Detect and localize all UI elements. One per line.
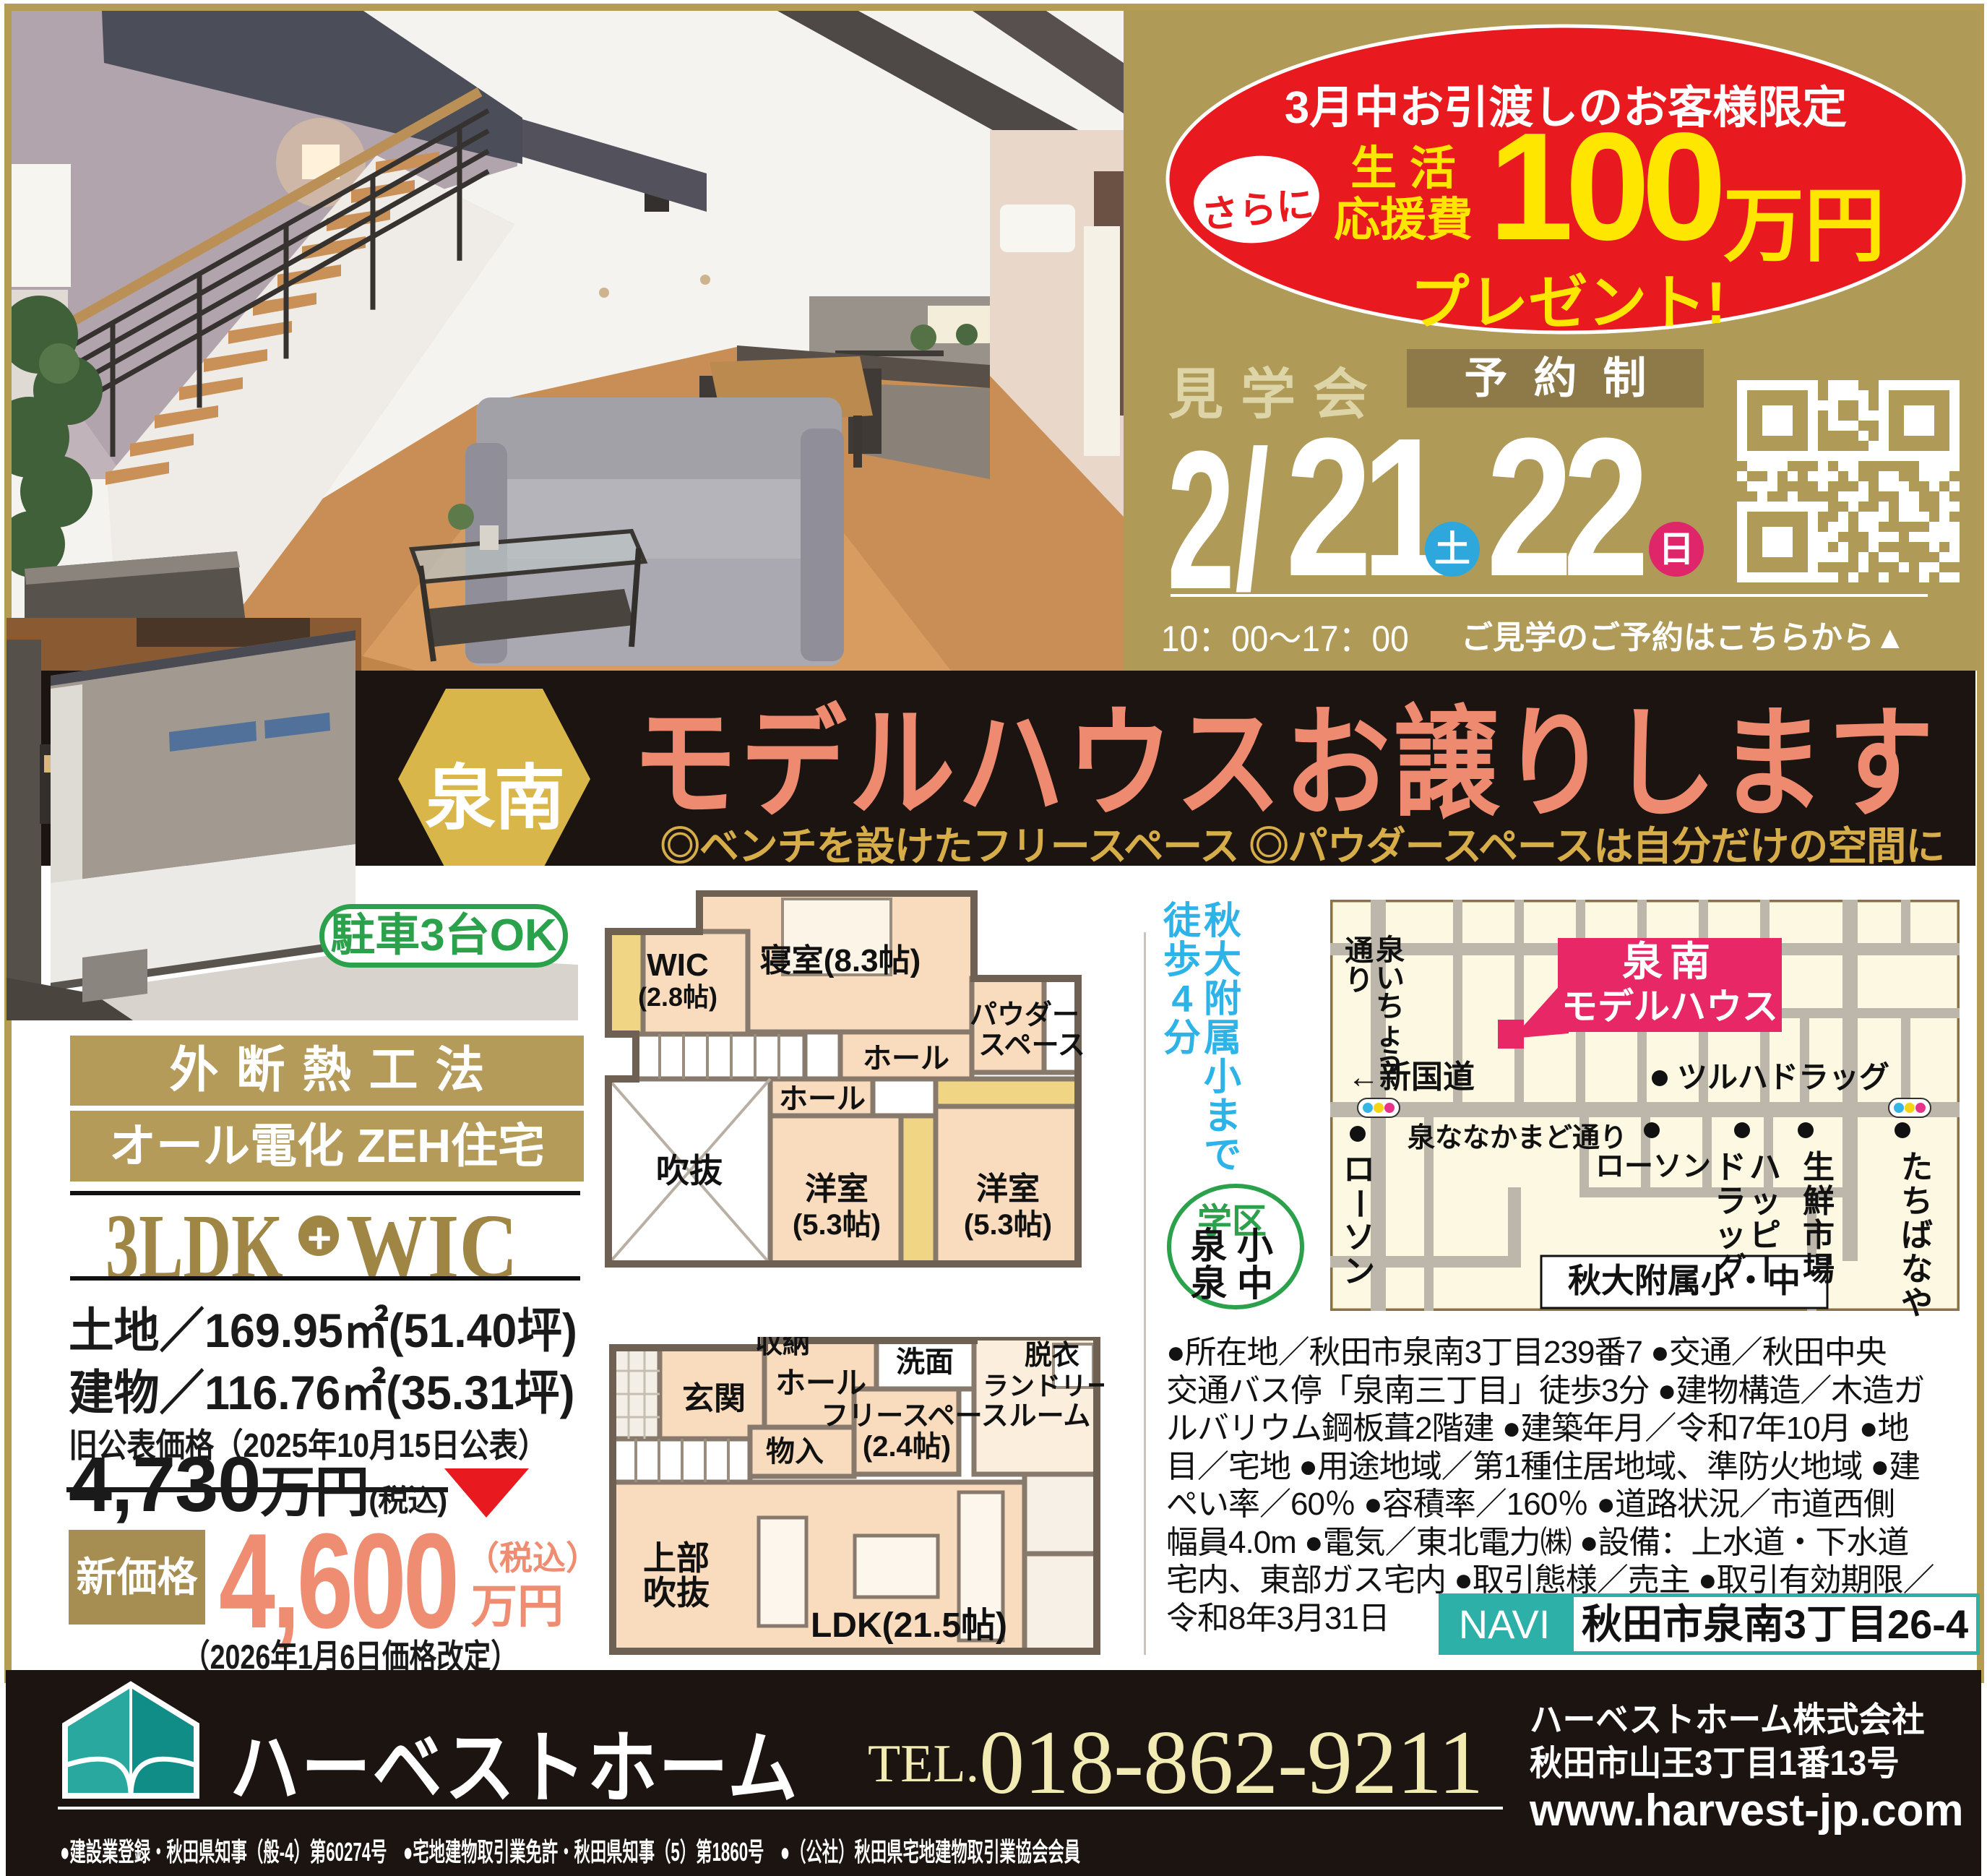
svg-text:ルーム: ルーム bbox=[1009, 1401, 1091, 1432]
svg-text:ランドリー: ランドリー bbox=[983, 1371, 1104, 1400]
svg-text:洋室: 洋室 bbox=[976, 1171, 1040, 1207]
svg-text:ローソン: ローソン bbox=[1595, 1150, 1711, 1182]
svg-text:洋室: 洋室 bbox=[805, 1171, 868, 1207]
svg-text:収納: 収納 bbox=[755, 1337, 810, 1359]
svg-text:吹抜: 吹抜 bbox=[656, 1152, 723, 1189]
svg-text:スペース: スペース bbox=[978, 1030, 1085, 1061]
svg-text:ホール: ホール bbox=[775, 1366, 866, 1400]
svg-text:玄関: 玄関 bbox=[682, 1381, 746, 1416]
svg-text:ツルハドラッグ: ツルハドラッグ bbox=[1677, 1060, 1889, 1094]
svg-text:パウダー: パウダー bbox=[970, 1000, 1079, 1030]
svg-text:上部: 上部 bbox=[643, 1539, 710, 1577]
svg-text:洗面: 洗面 bbox=[896, 1346, 954, 1378]
svg-text:(2.8帖): (2.8帖) bbox=[638, 982, 717, 1012]
svg-text:寝室(8.3帖): 寝室(8.3帖) bbox=[760, 942, 921, 978]
svg-text:モデルハウス: モデルハウス bbox=[1561, 986, 1778, 1027]
svg-text:(5.3帖): (5.3帖) bbox=[793, 1209, 881, 1241]
svg-text:フリースペース: フリースペース bbox=[821, 1401, 1009, 1432]
svg-text:泉ななかまど通り: 泉ななかまど通り bbox=[1408, 1123, 1627, 1153]
svg-text:WIC: WIC bbox=[647, 947, 709, 983]
svg-text:(5.3帖): (5.3帖) bbox=[964, 1209, 1052, 1241]
svg-text:(2.4帖): (2.4帖) bbox=[863, 1431, 951, 1463]
svg-text:物入: 物入 bbox=[766, 1436, 824, 1468]
svg-text:ホール: ホール bbox=[863, 1043, 949, 1075]
svg-text:LDK(21.5帖): LDK(21.5帖) bbox=[811, 1606, 1007, 1645]
svg-text:脱衣: 脱衣 bbox=[1025, 1341, 1079, 1371]
svg-text:吹抜: 吹抜 bbox=[643, 1574, 710, 1612]
svg-text:泉南: 泉南 bbox=[1622, 939, 1717, 984]
svg-text:ホール: ホール bbox=[779, 1083, 866, 1115]
svg-text:←新国道: ←新国道 bbox=[1348, 1059, 1475, 1095]
